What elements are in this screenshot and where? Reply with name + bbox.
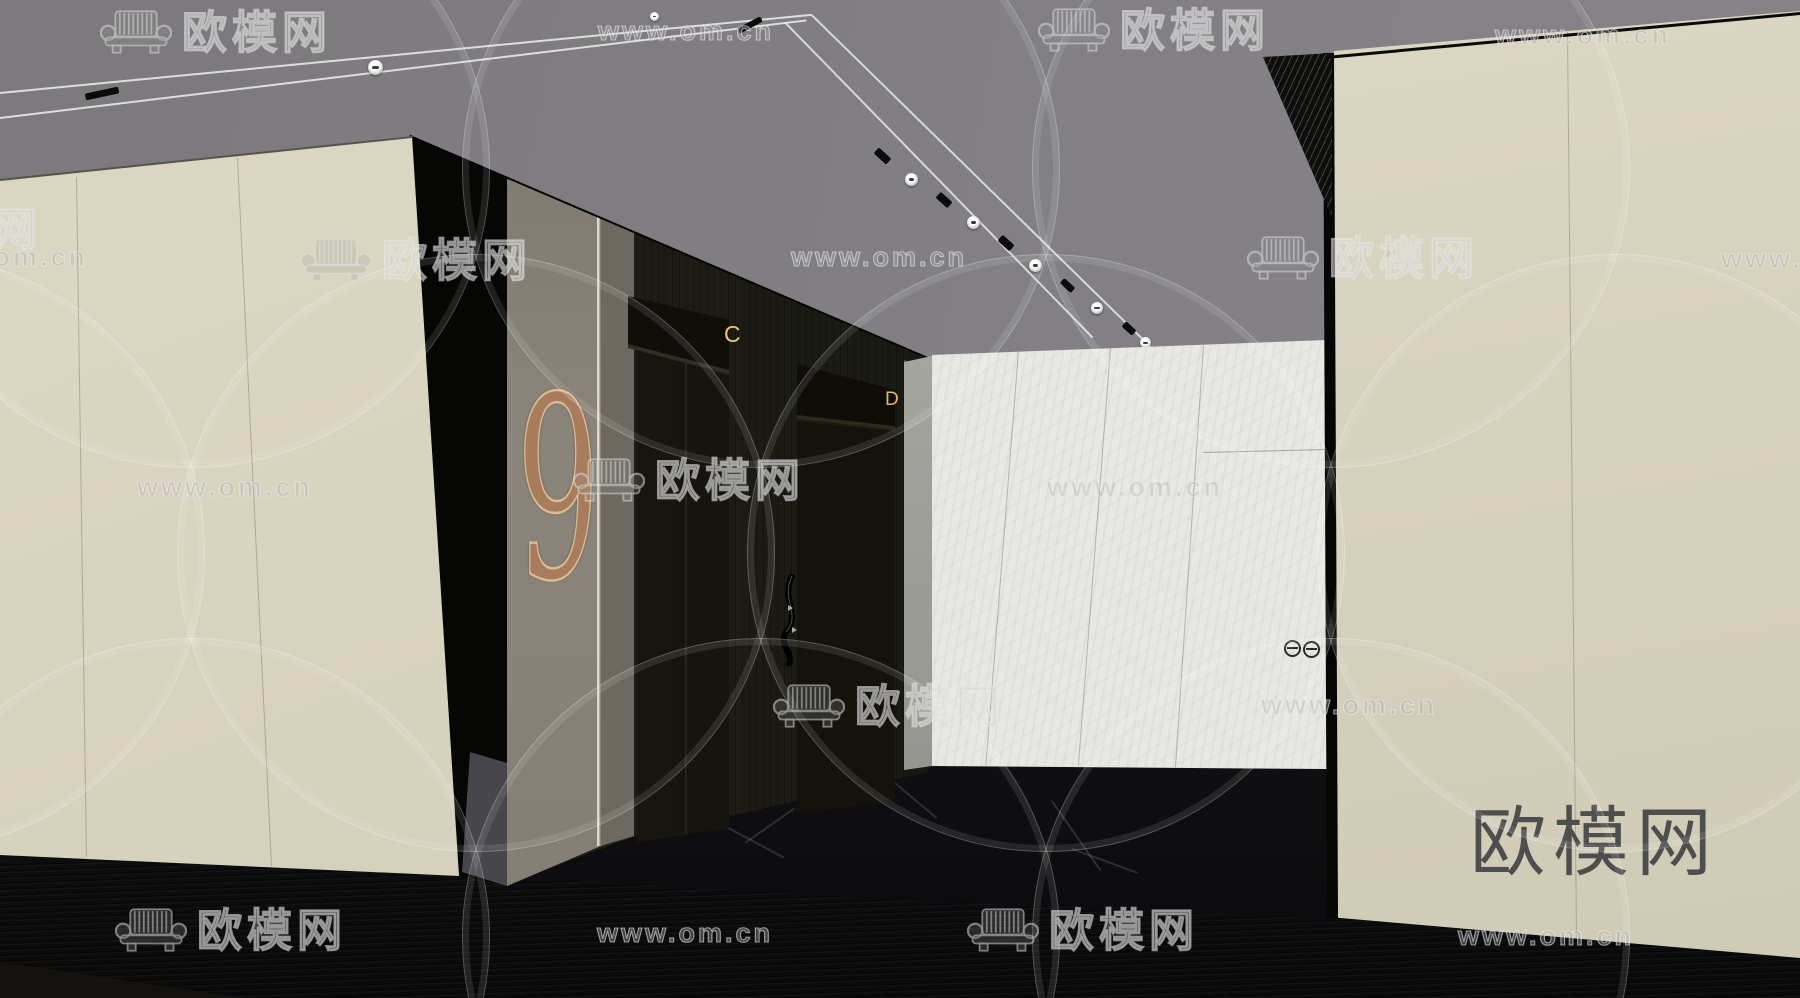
floor-vein	[1051, 800, 1101, 870]
handle-bar	[1306, 648, 1317, 650]
elevator-label-d: D	[885, 390, 899, 409]
floor-number-sign: 9	[498, 378, 618, 603]
sensor-dot	[792, 627, 797, 633]
sensor-dot	[788, 605, 793, 611]
door-handle-icon	[1303, 641, 1320, 658]
floor-vein	[745, 808, 795, 844]
door-handle-icon	[1284, 640, 1301, 657]
floor-vein	[1072, 848, 1138, 873]
interior-render-scene: C D 9 欧模网	[0, 0, 1800, 998]
handle-bar	[1287, 647, 1298, 649]
elevator-label-c: C	[724, 323, 741, 346]
door-handle-curve	[776, 574, 812, 666]
big-watermark-logo: 欧模网	[1470, 806, 1719, 882]
floor-vein	[895, 782, 938, 819]
